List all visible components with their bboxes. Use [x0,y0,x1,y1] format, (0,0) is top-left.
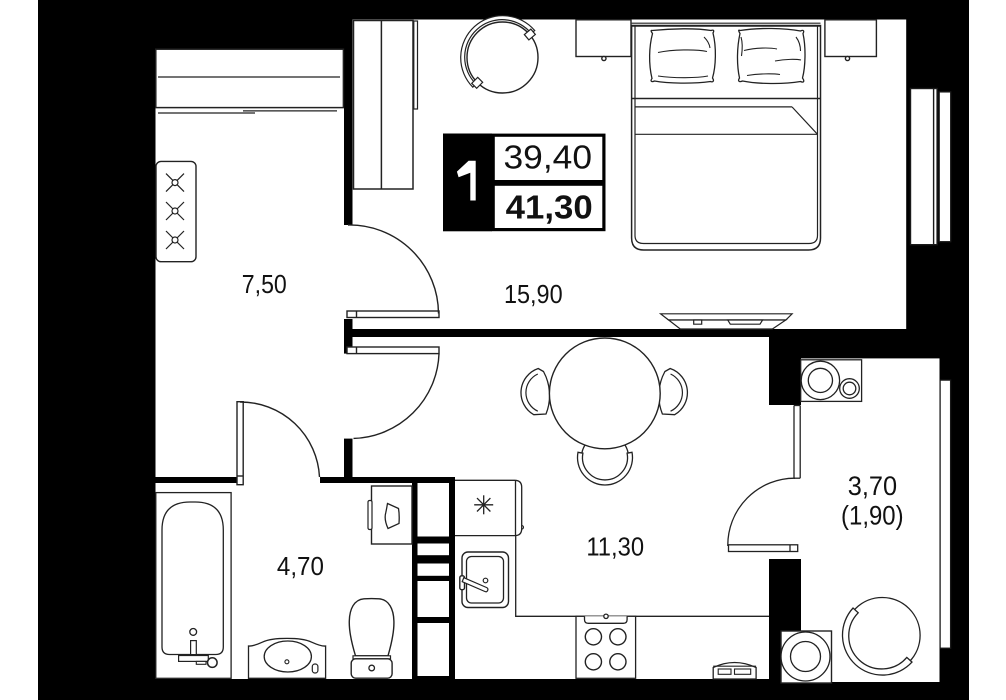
svg-text:3,70: 3,70 [848,471,897,501]
svg-text:41,30: 41,30 [506,189,593,226]
svg-text:11,30: 11,30 [586,531,644,561]
svg-text:39,40: 39,40 [504,138,593,175]
svg-text:15,90: 15,90 [504,279,563,309]
svg-text:4,70: 4,70 [277,551,324,581]
svg-text:7,50: 7,50 [242,269,287,299]
svg-text:(1,90): (1,90) [841,501,904,531]
